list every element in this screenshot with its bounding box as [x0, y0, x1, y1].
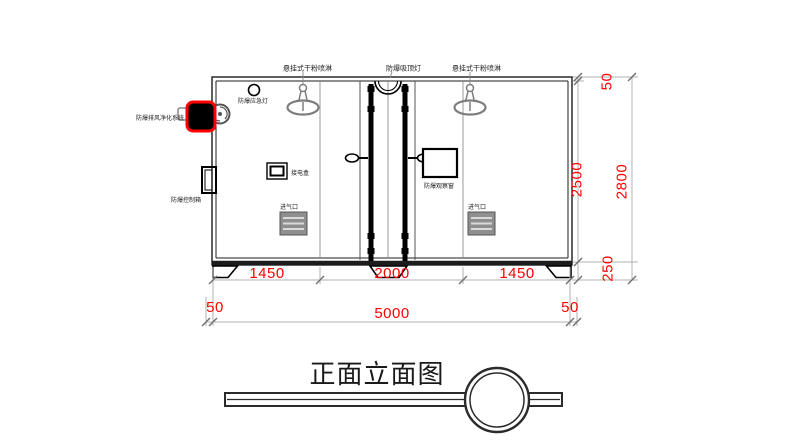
- exhaust-system-label: 防爆排风净化系统: [136, 113, 184, 122]
- air-inlet-right-label: 进气口: [468, 202, 486, 211]
- observation-window-icon: [423, 149, 457, 177]
- ceiling-light-label: 防爆吸顶灯: [386, 62, 421, 73]
- emergency-light-icon: [249, 85, 260, 96]
- junction-box-label: 接电盒: [291, 168, 309, 177]
- air-inlet-right-icon: [468, 212, 495, 235]
- dim-offset-bottom-left: 50: [195, 299, 235, 316]
- container-outline: [212, 77, 572, 265]
- dim-total-width: 5000: [362, 305, 422, 322]
- dim-segment-right: 1450: [487, 265, 547, 282]
- double-door: [346, 81, 431, 261]
- junction-box-icon: [267, 163, 287, 179]
- exhaust-system-icon: [178, 102, 230, 131]
- emergency-light-label: 防爆应急灯: [238, 96, 268, 105]
- sprinkler-left-icon: [288, 85, 319, 115]
- control-box-icon: [202, 167, 216, 193]
- dim-offset-bottom-right: 50: [550, 299, 590, 316]
- dim-segment-left: 1450: [237, 265, 297, 282]
- dim-segment-mid: 2000: [362, 265, 422, 282]
- dim-offset-right-top: 50: [599, 62, 616, 102]
- control-box-label: 防爆控制箱: [171, 195, 201, 204]
- elevation-drawing-canvas: 悬挂式干粉喷淋 防爆吸顶灯 悬挂式干粉喷淋 防爆应急灯 防爆排风净化系统 防爆控…: [0, 0, 800, 445]
- dim-body-height: 2500: [569, 150, 586, 210]
- dim-base-height: 250: [600, 239, 617, 299]
- sprinkler-left-label: 悬挂式干粉喷淋: [283, 62, 332, 73]
- leader-lines: [303, 72, 470, 84]
- drawing-title: 正面立面图: [297, 354, 457, 391]
- air-inlet-left-icon: [280, 212, 307, 235]
- air-inlet-left-label: 进气口: [280, 202, 298, 211]
- sprinkler-right-label: 悬挂式干粉喷淋: [452, 62, 501, 73]
- sprinkler-right-icon: [455, 85, 486, 115]
- dim-total-height: 2800: [614, 152, 631, 212]
- observation-window-label: 防爆观察窗: [424, 181, 454, 190]
